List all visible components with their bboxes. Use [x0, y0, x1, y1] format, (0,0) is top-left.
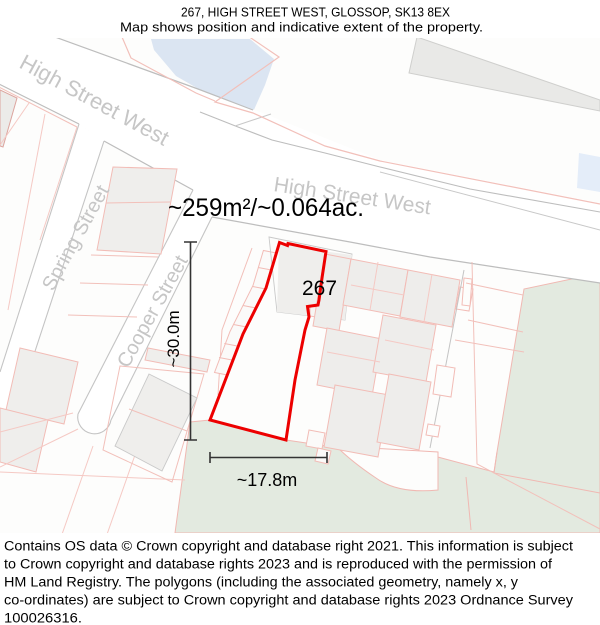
svg-text:co-ordinates) are subject to C: co-ordinates) are subject to Crown copyr… [4, 593, 573, 608]
svg-text:~17.8m: ~17.8m [237, 470, 298, 490]
svg-text:267, HIGH STREET WEST, GLOSSOP: 267, HIGH STREET WEST, GLOSSOP, SK13 8EX [181, 5, 450, 20]
svg-text:Contains OS data © Crown copyr: Contains OS data © Crown copyright and d… [4, 539, 573, 554]
svg-text:100026316.: 100026316. [4, 611, 82, 625]
svg-text:Map shows position and indicat: Map shows position and indicative extent… [120, 20, 483, 35]
svg-text:~259m²/~0.064ac.: ~259m²/~0.064ac. [168, 194, 364, 222]
svg-text:HM Land Registry. The polygons: HM Land Registry. The polygons (includin… [4, 575, 518, 590]
svg-text:to Crown copyright and databas: to Crown copyright and database rights 2… [4, 557, 552, 572]
svg-text:267: 267 [302, 276, 337, 300]
svg-text:~30.0m: ~30.0m [164, 310, 183, 367]
